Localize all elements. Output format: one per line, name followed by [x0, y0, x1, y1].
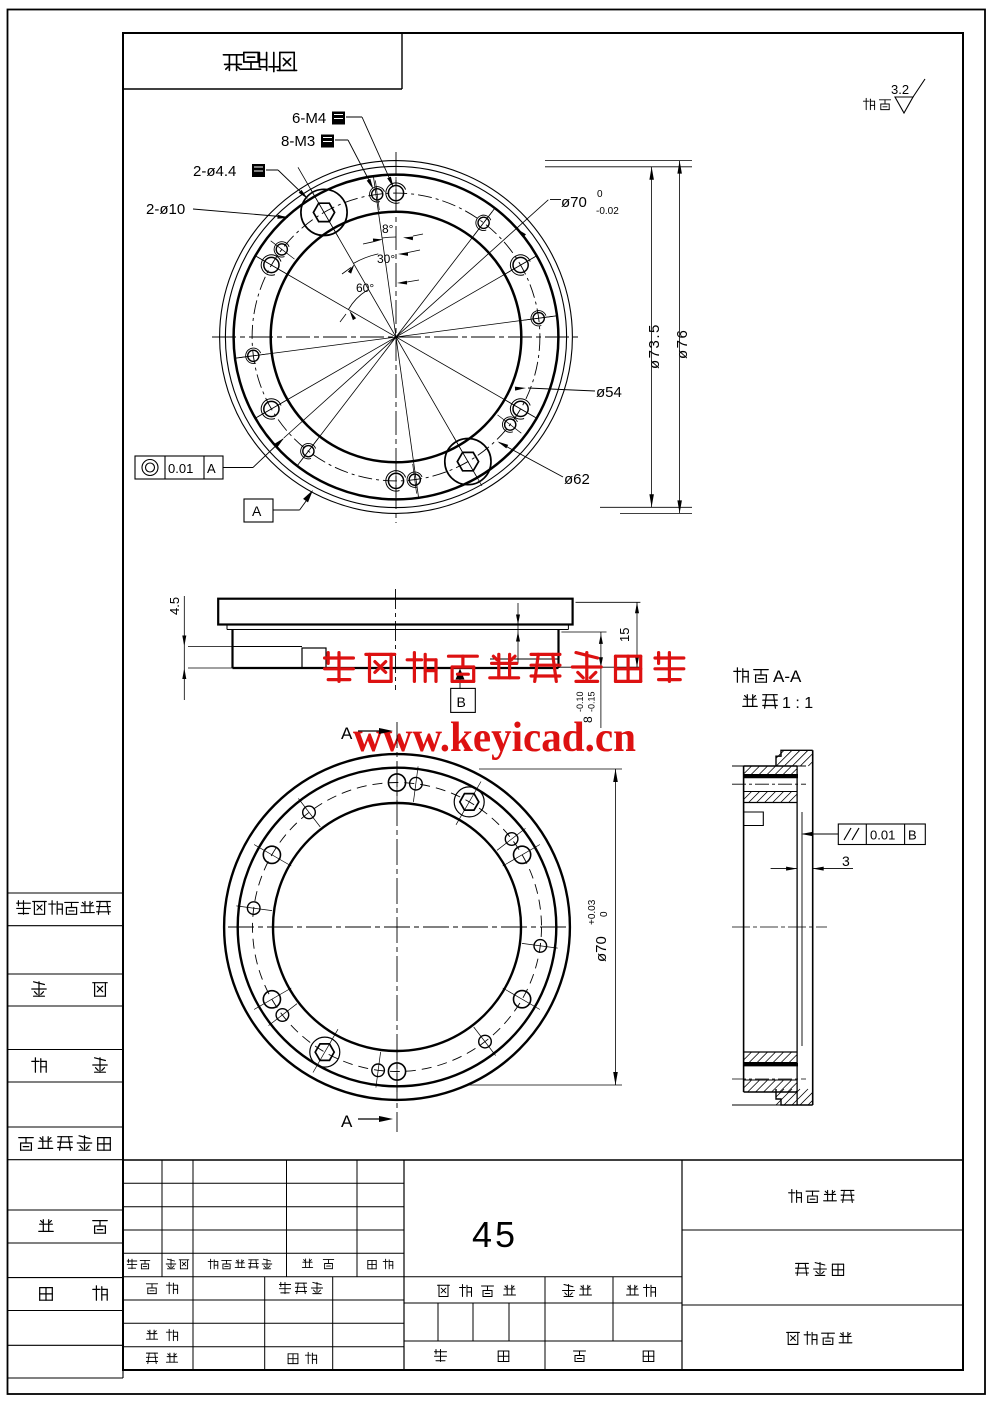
svg-text:0.01: 0.01	[870, 828, 895, 843]
svg-text:8-M3: 8-M3	[281, 133, 315, 150]
svg-text:B: B	[457, 694, 466, 710]
svg-text:1 : 1: 1 : 1	[782, 695, 813, 712]
svg-text:0: 0	[597, 189, 603, 200]
svg-text:B: B	[908, 828, 917, 843]
svg-text:60°: 60°	[356, 281, 374, 295]
svg-text:ø62: ø62	[564, 471, 590, 488]
svg-text:2-ø4.4: 2-ø4.4	[193, 163, 236, 180]
svg-text:8°: 8°	[382, 222, 394, 236]
svg-text:ø70: ø70	[561, 194, 587, 211]
svg-text:2-ø10: 2-ø10	[146, 201, 185, 218]
svg-text:15: 15	[617, 628, 632, 642]
svg-text:-0.15: -0.15	[587, 691, 597, 712]
svg-text:3: 3	[842, 853, 850, 869]
svg-text:0.01: 0.01	[168, 461, 193, 476]
svg-text:6-M4: 6-M4	[292, 110, 326, 127]
svg-text:-0.10: -0.10	[575, 691, 585, 712]
svg-text:30°: 30°	[377, 252, 395, 266]
svg-text:+0.03: +0.03	[587, 899, 598, 925]
svg-text:4.5: 4.5	[167, 597, 182, 615]
svg-text:ø54: ø54	[596, 384, 622, 401]
svg-text:A: A	[341, 1112, 353, 1131]
svg-text:45: 45	[472, 1214, 518, 1255]
svg-text:ø70: ø70	[593, 936, 610, 962]
svg-text:-0.02: -0.02	[596, 206, 619, 217]
svg-text:ø76: ø76	[674, 329, 691, 359]
svg-text:A: A	[341, 724, 353, 743]
svg-text:A: A	[252, 503, 262, 519]
svg-text:A-A: A-A	[773, 667, 802, 686]
svg-text:0: 0	[599, 911, 610, 917]
svg-text:ø73.5: ø73.5	[646, 323, 663, 369]
svg-text:3.2: 3.2	[891, 82, 909, 97]
svg-text:A: A	[207, 461, 216, 476]
